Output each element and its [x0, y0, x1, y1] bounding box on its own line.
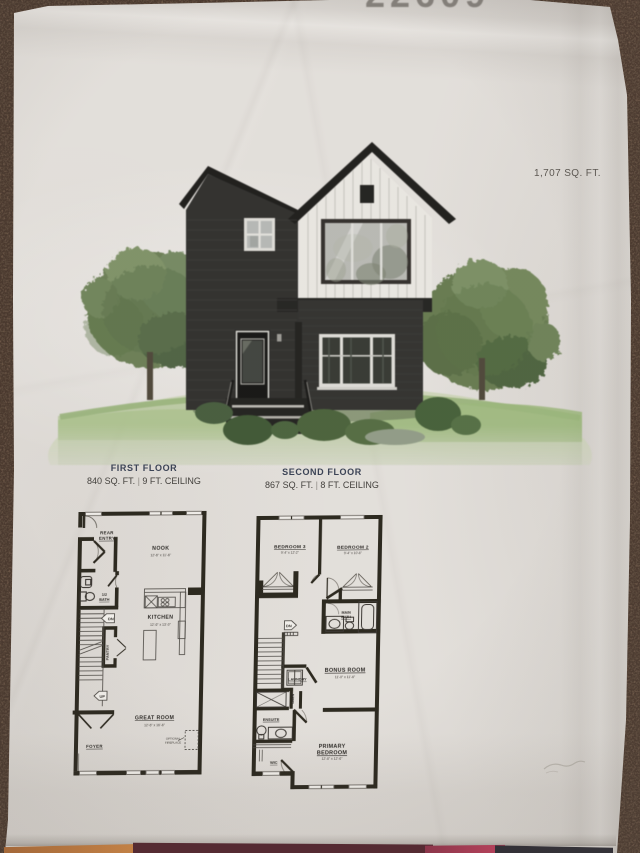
- svg-text:9'-4" x 12'-2": 9'-4" x 12'-2": [281, 551, 299, 555]
- svg-text:LINEN: LINEN: [291, 693, 295, 703]
- svg-text:12'-6" x 13'-0": 12'-6" x 13'-0": [150, 623, 172, 627]
- svg-text:9'-4" x 10'-6": 9'-4" x 10'-6": [344, 551, 362, 555]
- svg-text:REAR: REAR: [100, 530, 114, 535]
- svg-text:ENTRY: ENTRY: [99, 536, 115, 541]
- svg-text:NOOK: NOOK: [152, 546, 169, 552]
- svg-text:WIC: WIC: [270, 761, 278, 765]
- svg-text:1/2: 1/2: [102, 593, 107, 597]
- svg-text:12'-6" x 11'-6": 12'-6" x 11'-6": [150, 553, 171, 557]
- svg-text:12'-6" x 12'-6": 12'-6" x 12'-6": [321, 757, 343, 761]
- svg-text:MAIN: MAIN: [342, 611, 352, 615]
- svg-text:FOYER: FOYER: [86, 744, 103, 749]
- svg-text:KITCHEN: KITCHEN: [147, 615, 173, 621]
- svg-text:GREAT ROOM: GREAT ROOM: [135, 715, 174, 721]
- svg-text:BATH: BATH: [99, 598, 110, 602]
- svg-text:ENSUITE: ENSUITE: [263, 718, 280, 722]
- svg-text:DN: DN: [286, 623, 292, 628]
- svg-text:PRIMARY: PRIMARY: [319, 744, 346, 750]
- svg-text:BONUS ROOM: BONUS ROOM: [325, 668, 366, 674]
- svg-text:BEDROOM 2: BEDROOM 2: [337, 545, 369, 551]
- svg-text:12'-6" x 16'-6": 12'-6" x 16'-6": [144, 723, 166, 727]
- svg-text:DN: DN: [108, 616, 114, 621]
- svg-text:BEDROOM: BEDROOM: [317, 750, 348, 756]
- svg-text:PANTRY: PANTRY: [106, 644, 110, 660]
- svg-text:LAUNDRY: LAUNDRY: [288, 678, 307, 682]
- svg-text:FIREPLACE: FIREPLACE: [165, 740, 181, 744]
- svg-text:UP: UP: [99, 694, 105, 699]
- svg-text:11'-0" x 11'-6": 11'-0" x 11'-6": [335, 675, 356, 679]
- svg-text:BEDROOM 3: BEDROOM 3: [274, 544, 306, 550]
- svg-text:BATH: BATH: [341, 615, 351, 619]
